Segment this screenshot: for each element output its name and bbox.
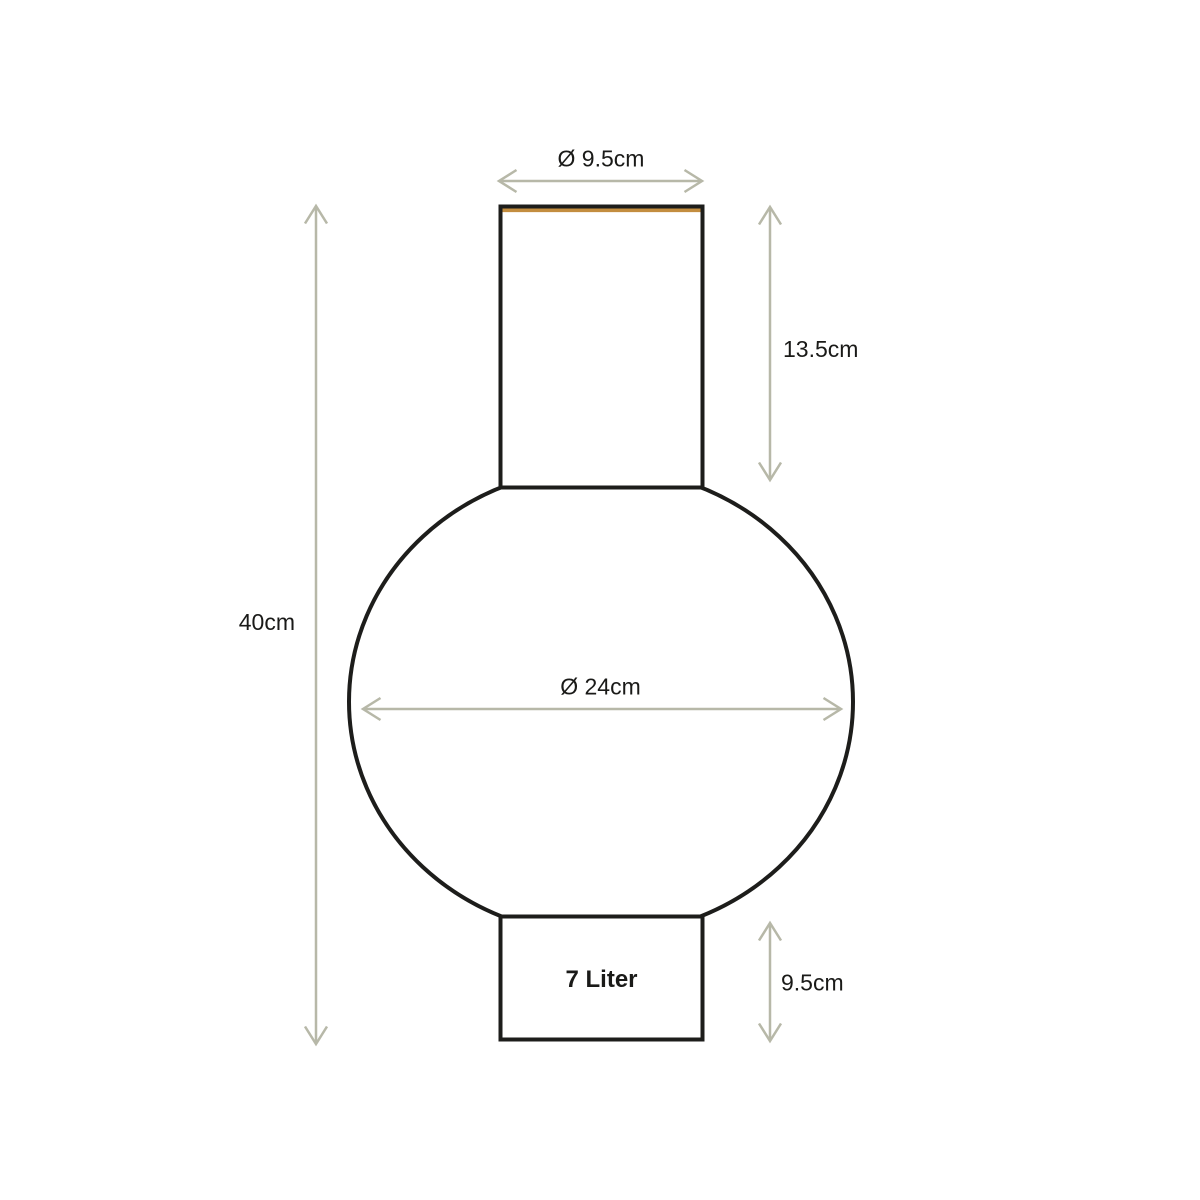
svg-text:40cm: 40cm (239, 609, 295, 635)
svg-text:9.5cm: 9.5cm (781, 970, 844, 996)
svg-text:13.5cm: 13.5cm (783, 336, 858, 362)
svg-text:7 Liter: 7 Liter (565, 966, 637, 993)
svg-text:Ø 24cm: Ø 24cm (560, 674, 641, 700)
svg-text:Ø 9.5cm: Ø 9.5cm (558, 146, 645, 172)
